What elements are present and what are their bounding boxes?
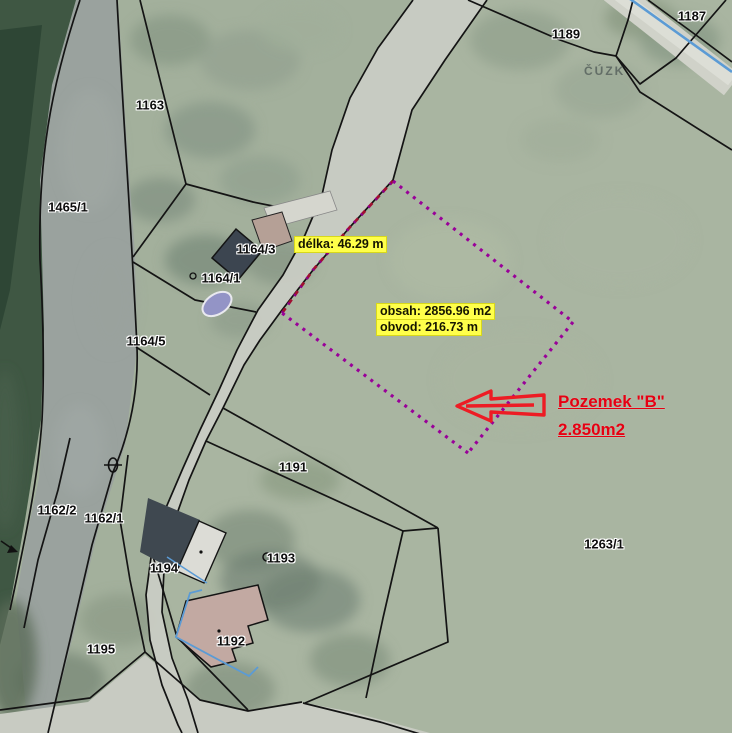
parcel-label-1189: 1189 (552, 27, 580, 42)
parcel-label-1192: 1192 (217, 634, 245, 649)
cuzk-watermark: ČÚZK (584, 64, 625, 78)
parcel-label-1164-1: 1164/1 (201, 271, 240, 286)
map-canvas (0, 0, 732, 733)
annotation-parcel-area: 2.850m2 (558, 420, 625, 440)
parcel-label-1163: 1163 (136, 98, 164, 113)
annotation-parcel-name: Pozemek "B" (558, 392, 665, 412)
measurement-label-0: délka: 46.29 m (294, 236, 387, 253)
parcel-label-1164-5: 1164/5 (126, 334, 165, 349)
building-1194-point (199, 550, 202, 553)
parcel-label-1195: 1195 (87, 642, 115, 657)
building-1192-point (217, 629, 220, 632)
parcel-label-1194: 1194 (150, 561, 178, 576)
cadastral-map-viewport[interactable]: 1187118911631465/11164/31164/11164/51191… (0, 0, 732, 733)
parcel-label-1162-1: 1162/1 (84, 511, 123, 526)
parcel-label-1187: 1187 (678, 9, 706, 24)
parcel-label-1263-1: 1263/1 (584, 537, 624, 552)
parcel-label-1164-3: 1164/3 (236, 242, 275, 257)
measurement-label-1: obsah: 2856.96 m2 (376, 303, 495, 320)
measurement-label-2: obvod: 216.73 m (376, 319, 482, 336)
parcel-label-1465-1: 1465/1 (48, 200, 88, 215)
parcel-label-1193: 1193 (267, 551, 295, 566)
parcel-label-1191: 1191 (279, 460, 307, 475)
parcel-label-1162-2: 1162/2 (37, 503, 76, 518)
